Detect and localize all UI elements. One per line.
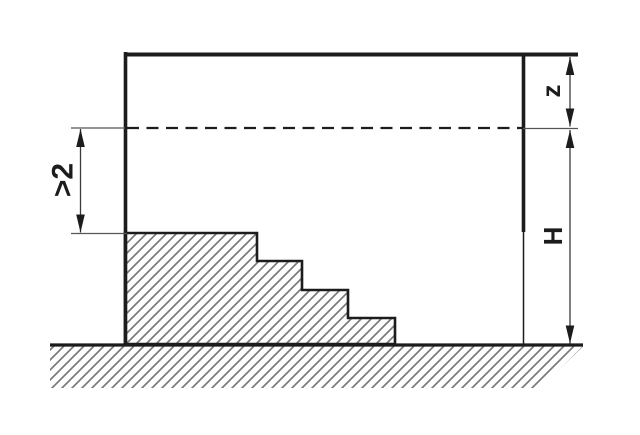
label-h: H	[538, 227, 568, 246]
arrow-h-down	[566, 326, 575, 344]
stepped-soil-block	[125, 233, 395, 344]
diagram-page: >2 z H	[0, 0, 640, 435]
arrow-left-dim-up	[76, 129, 85, 147]
arrow-h-up	[566, 130, 575, 148]
arrow-left-dim-down	[76, 215, 85, 233]
diagram-canvas: >2 z H	[0, 0, 640, 435]
label-left-dim: >2	[47, 163, 80, 197]
arrow-z-down	[566, 109, 575, 127]
ground-hatch-band	[50, 347, 583, 389]
arrow-z-up	[566, 57, 575, 75]
label-z: z	[536, 85, 566, 98]
